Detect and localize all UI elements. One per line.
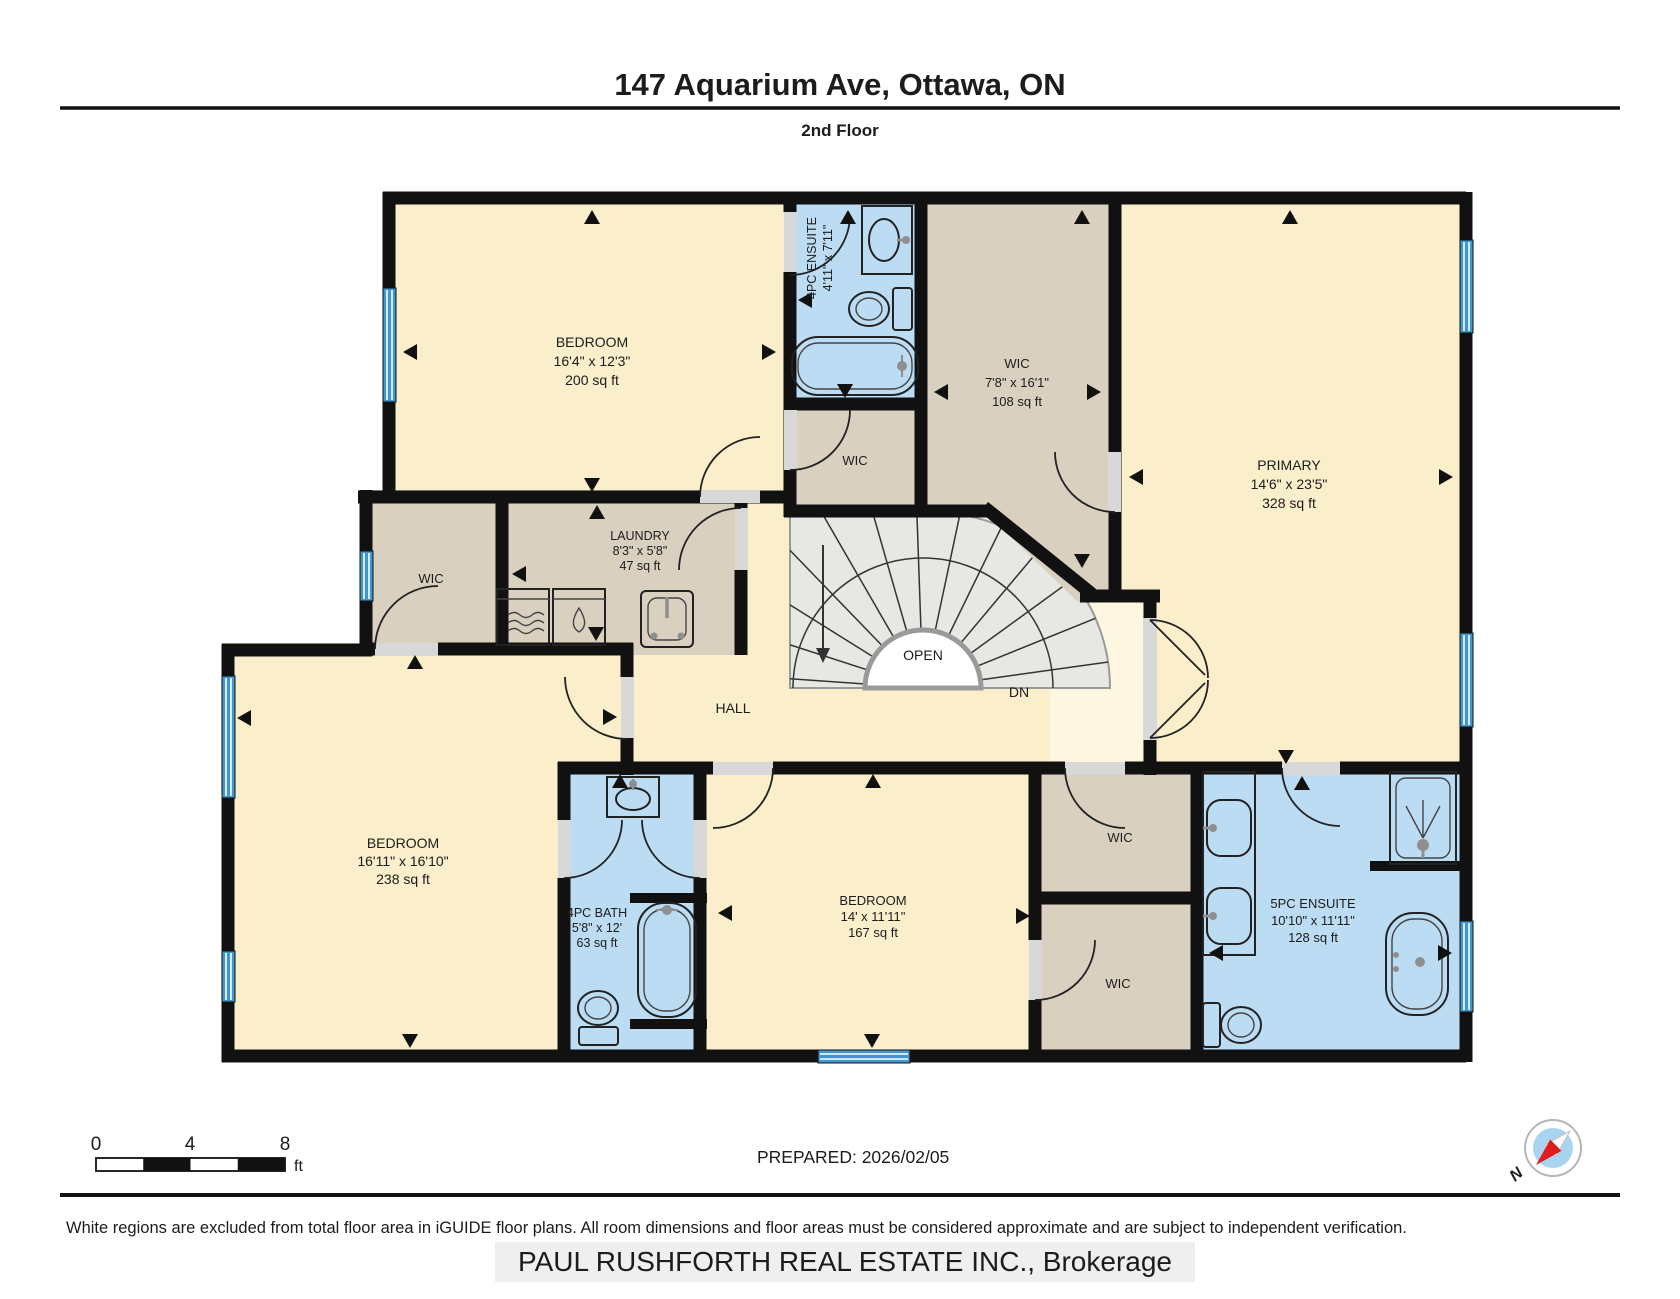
room-fills <box>222 192 1472 1062</box>
door-threshold <box>1282 762 1340 775</box>
svg-text:BEDROOM: BEDROOM <box>556 334 628 350</box>
scale-unit: ft <box>294 1158 303 1175</box>
svg-text:14'6" x 23'5": 14'6" x 23'5" <box>1251 476 1328 492</box>
door-threshold <box>694 820 707 878</box>
label-hall: HALL <box>715 700 750 716</box>
svg-text:14' x 11'11": 14' x 11'11" <box>841 909 906 924</box>
label-stairs-open: OPEN <box>903 647 943 663</box>
window-icon <box>222 676 235 798</box>
scale-tick-4: 4 <box>185 1134 196 1155</box>
room-hall-corridor <box>745 497 790 692</box>
svg-text:16'11" x 16'10": 16'11" x 16'10" <box>357 853 448 869</box>
floor-plan-svg: 147 Aquarium Ave, Ottawa, ON 2nd Floor <box>0 0 1680 1299</box>
scale-bar: 0 4 8 ft <box>91 1134 304 1175</box>
svg-text:5PC ENSUITE: 5PC ENSUITE <box>1270 896 1356 911</box>
page-title: 147 Aquarium Ave, Ottawa, ON <box>614 67 1065 102</box>
svg-text:WIC: WIC <box>1004 356 1029 371</box>
label-wic-mid: WIC <box>842 453 867 468</box>
svg-text:BEDROOM: BEDROOM <box>367 835 439 851</box>
door-threshold <box>558 820 571 878</box>
svg-text:47 sq ft: 47 sq ft <box>620 559 662 573</box>
door-threshold <box>1029 940 1042 1000</box>
door-threshold <box>1143 618 1157 740</box>
door-threshold <box>784 212 797 272</box>
svg-text:10'10" x 11'11": 10'10" x 11'11" <box>1271 913 1355 928</box>
label-wic-r-upper: WIC <box>1107 830 1132 845</box>
floor-subtitle: 2nd Floor <box>801 121 879 140</box>
svg-text:200 sq ft: 200 sq ft <box>565 372 619 388</box>
svg-text:PRIMARY: PRIMARY <box>1257 457 1321 473</box>
svg-text:167 sq ft: 167 sq ft <box>848 925 898 940</box>
door-threshold <box>700 490 760 503</box>
svg-text:7'8" x 16'1": 7'8" x 16'1" <box>985 375 1049 390</box>
compass-north-label: N <box>1507 1164 1527 1185</box>
svg-text:LAUNDRY: LAUNDRY <box>610 529 670 543</box>
label-stairs-dn: DN <box>1009 684 1029 700</box>
scale-tick-0: 0 <box>91 1134 102 1155</box>
window-icon <box>222 951 235 1002</box>
window-icon <box>818 1050 910 1063</box>
door-threshold <box>735 508 748 570</box>
window-icon <box>1460 921 1473 1012</box>
label-wic-left: WIC <box>418 571 443 586</box>
svg-text:328 sq ft: 328 sq ft <box>1262 495 1316 511</box>
svg-text:4PC ENSUITE: 4PC ENSUITE <box>805 217 819 299</box>
svg-text:238 sq ft: 238 sq ft <box>376 871 430 887</box>
label-wic-r-lower: WIC <box>1105 976 1130 991</box>
door-threshold <box>713 762 773 775</box>
brokerage-watermark: PAUL RUSHFORTH REAL ESTATE INC., Brokera… <box>518 1246 1172 1277</box>
door-threshold <box>621 677 634 738</box>
svg-text:BEDROOM: BEDROOM <box>839 893 906 908</box>
prepared-date: PREPARED: 2026/02/05 <box>757 1147 949 1167</box>
window-icon <box>1460 633 1473 727</box>
window-icon <box>360 551 373 601</box>
floor-plan-page: 147 Aquarium Ave, Ottawa, ON 2nd Floor <box>0 0 1680 1299</box>
svg-text:108 sq ft: 108 sq ft <box>992 394 1042 409</box>
door-threshold <box>1065 762 1125 775</box>
scale-tick-8: 8 <box>280 1134 291 1155</box>
door-threshold <box>784 410 797 470</box>
label-bedroom-s: BEDROOM 14' x 11'11" 167 sq ft <box>839 893 906 940</box>
svg-text:128 sq ft: 128 sq ft <box>1288 930 1338 945</box>
svg-text:8'3" x 5'8": 8'3" x 5'8" <box>613 544 668 558</box>
disclaimer-text: White regions are excluded from total fl… <box>66 1219 1407 1237</box>
svg-text:4'11" x 7'11": 4'11" x 7'11" <box>821 225 835 292</box>
compass-icon: N <box>1507 1120 1581 1185</box>
room-ensuite-5pc <box>1191 762 1472 1062</box>
svg-text:16'4" x 12'3": 16'4" x 12'3" <box>554 353 631 369</box>
door-threshold <box>375 643 438 656</box>
window-icon <box>1460 240 1473 333</box>
svg-text:5'8" x 12': 5'8" x 12' <box>572 921 622 935</box>
window-icon <box>383 288 396 402</box>
svg-text:4PC BATH: 4PC BATH <box>567 906 627 920</box>
svg-text:63 sq ft: 63 sq ft <box>577 936 619 950</box>
door-threshold <box>1108 452 1121 512</box>
